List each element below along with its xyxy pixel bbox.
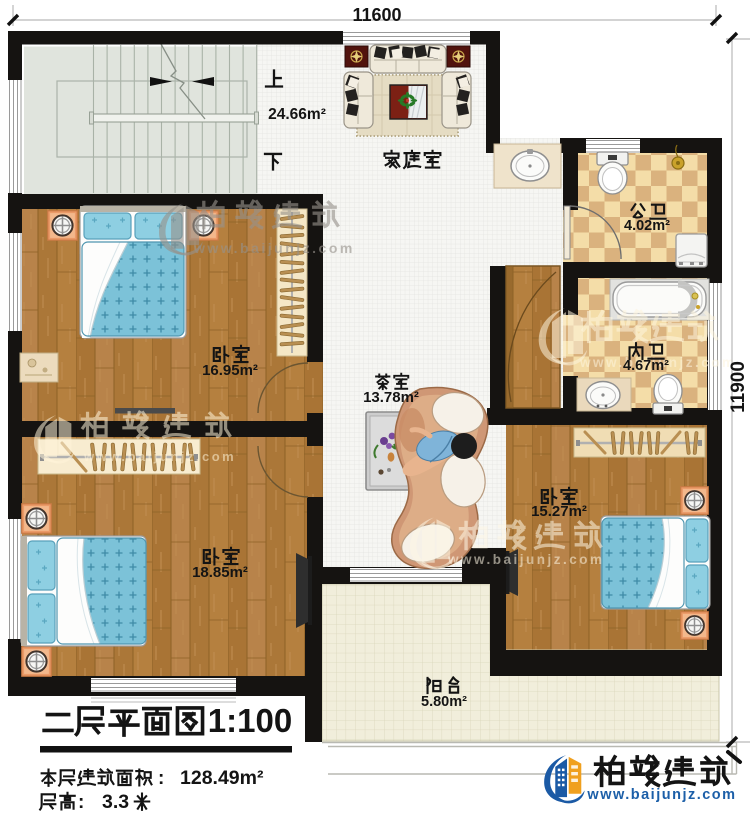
- svg-text:www.baijunjz.com: www.baijunjz.com: [586, 787, 736, 803]
- svg-text:11900: 11900: [728, 361, 749, 413]
- svg-text:13.78m²: 13.78m²: [363, 389, 419, 406]
- svg-text:1:100: 1:100: [208, 702, 292, 739]
- svg-text::: :: [78, 792, 84, 813]
- svg-text:24.66m²: 24.66m²: [268, 106, 326, 123]
- svg-text:4.02m²: 4.02m²: [624, 218, 670, 234]
- svg-text:15.27m²: 15.27m²: [531, 503, 587, 520]
- svg-text:18.85m²: 18.85m²: [192, 564, 248, 581]
- svg-text:5.80m²: 5.80m²: [421, 694, 467, 710]
- svg-text:www.baijunjz.com: www.baijunjz.com: [193, 240, 355, 256]
- svg-text:www.baijunjz.com: www.baijunjz.com: [83, 449, 236, 464]
- svg-text:www.baijunjz.com: www.baijunjz.com: [447, 552, 605, 567]
- svg-text:16.95m²: 16.95m²: [202, 362, 258, 379]
- svg-text::: :: [158, 768, 164, 789]
- svg-text:3.3: 3.3: [102, 791, 129, 813]
- svg-text:128.49m²: 128.49m²: [180, 767, 264, 789]
- svg-text:4.67m²: 4.67m²: [623, 358, 669, 374]
- svg-text:11600: 11600: [352, 5, 401, 25]
